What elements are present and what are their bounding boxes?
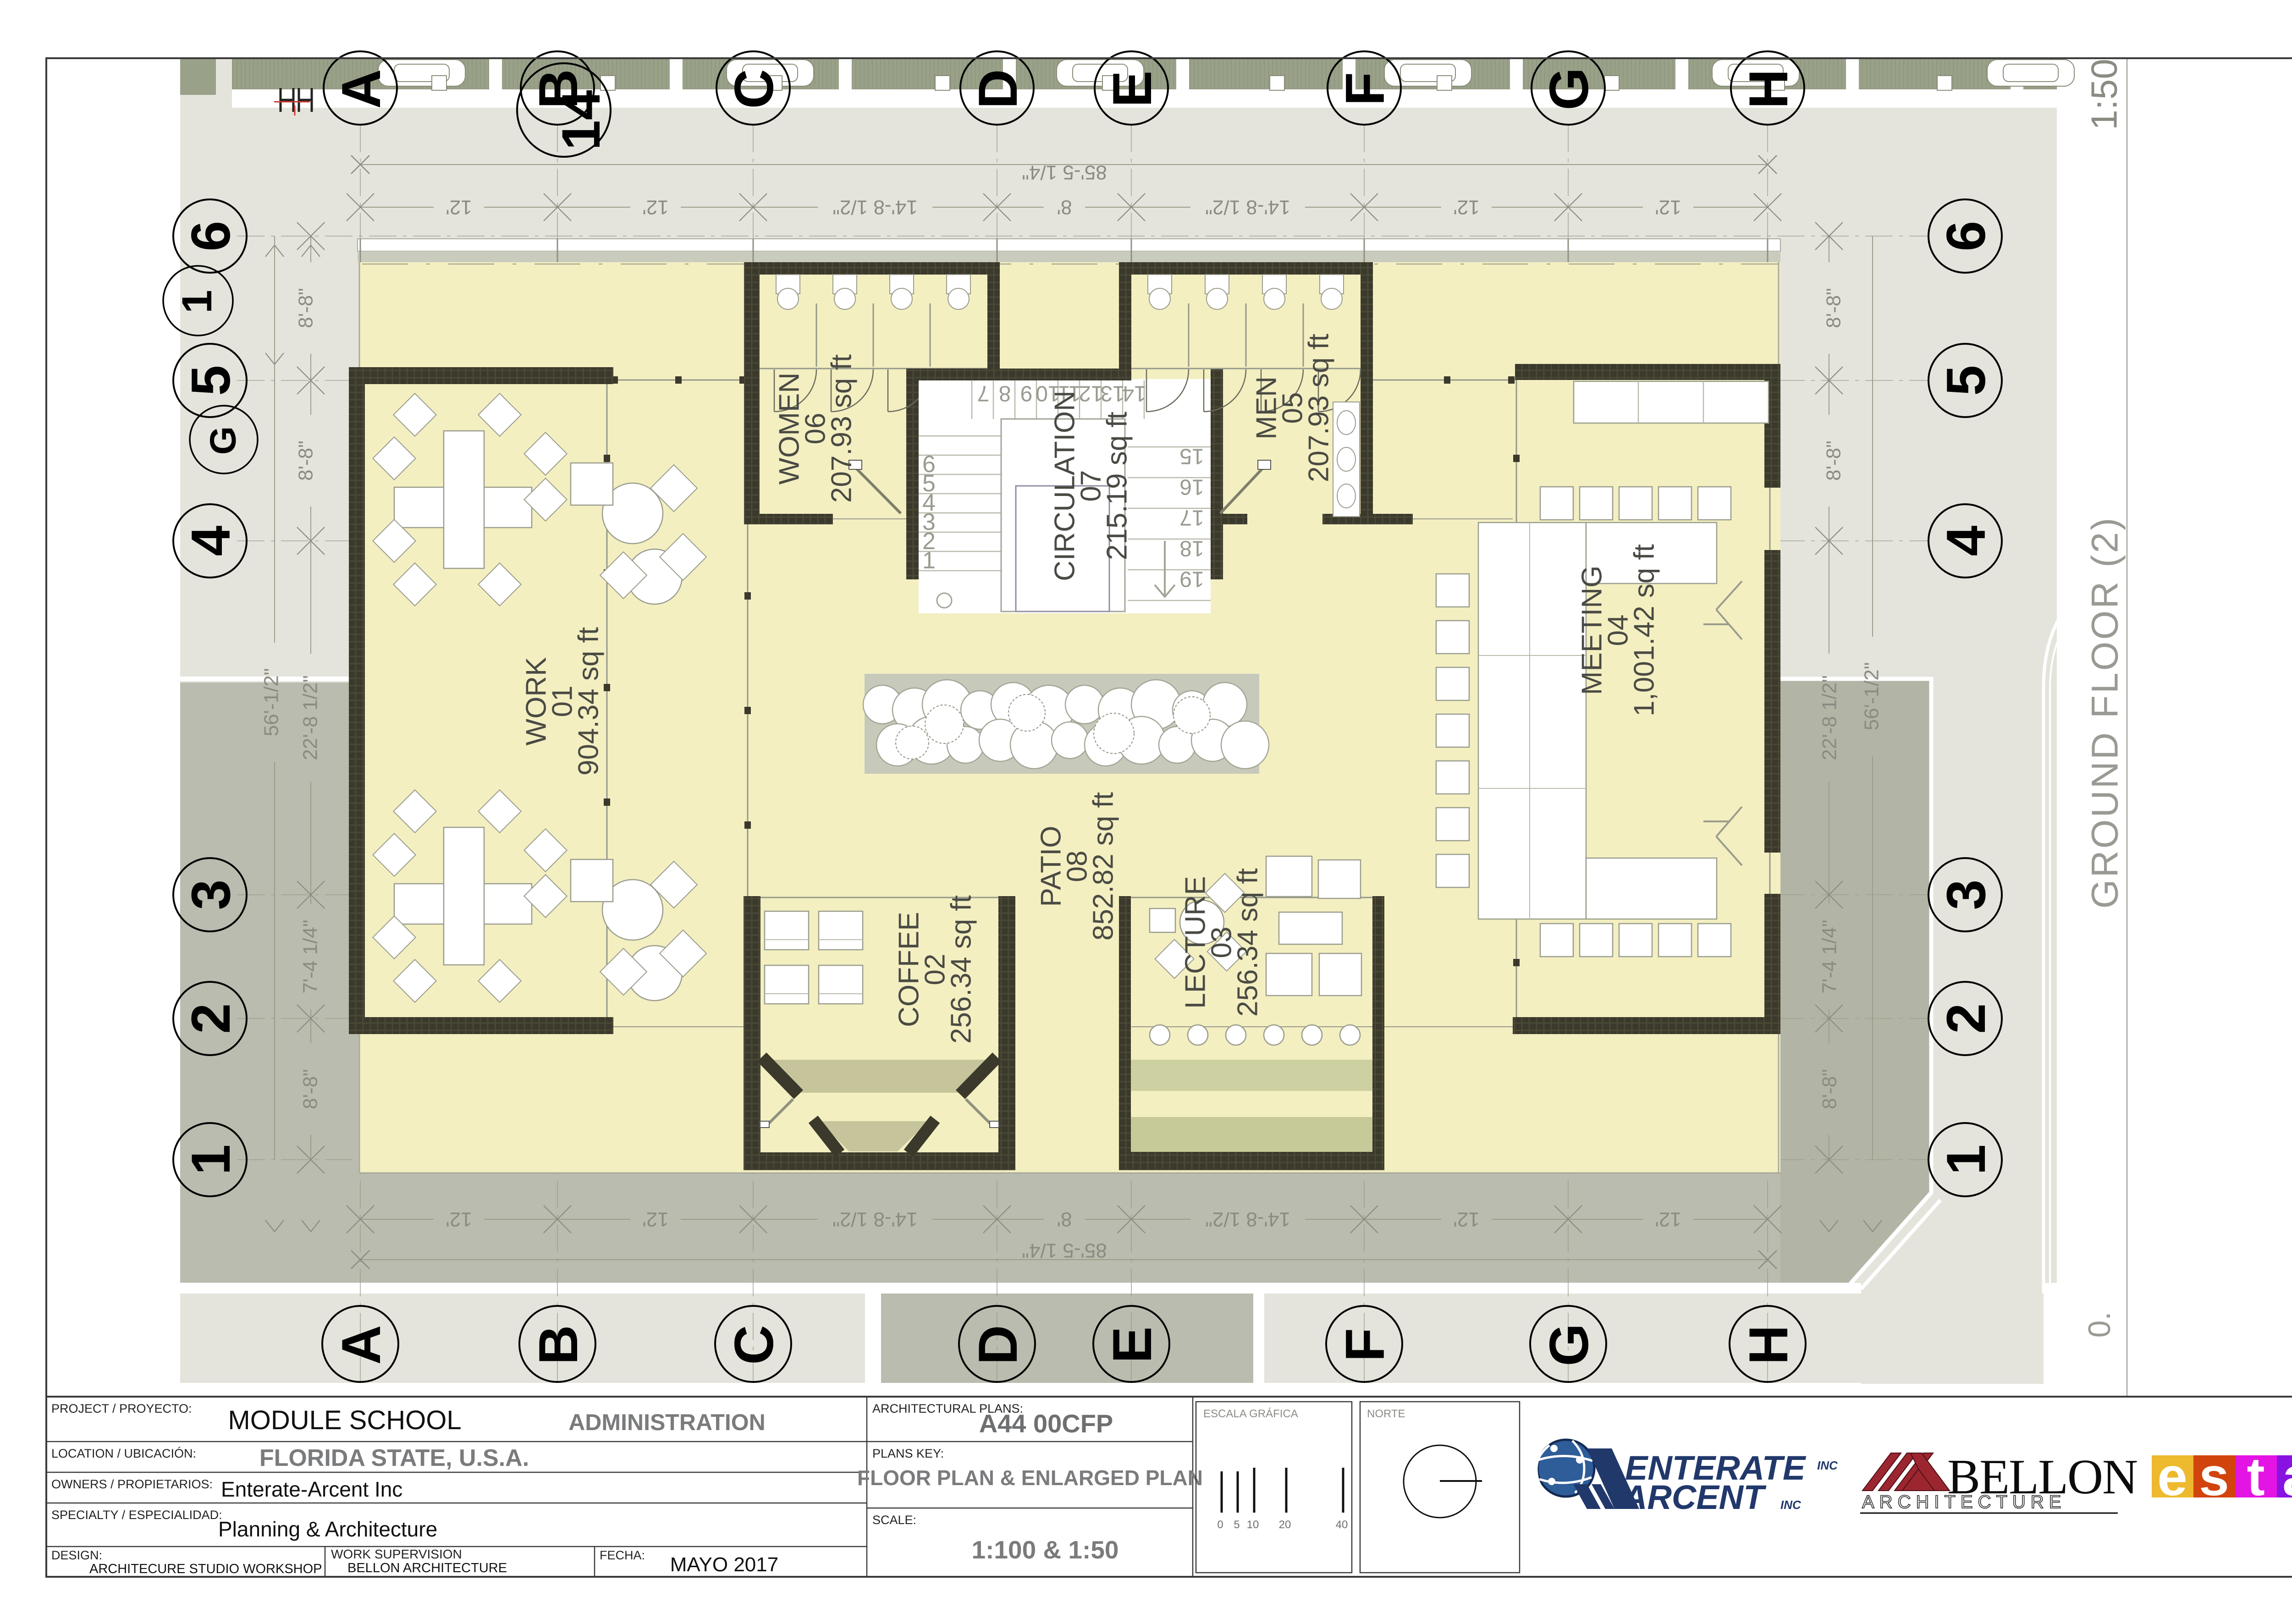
svg-text:5: 5 [1935,365,1997,396]
svg-text:40: 40 [1336,1519,1348,1531]
svg-text:85'-5 1/4": 85'-5 1/4" [1022,161,1107,184]
svg-text:SPECIALTY / ESPECIALIDAD:: SPECIALTY / ESPECIALIDAD: [51,1508,222,1522]
svg-text:3: 3 [180,880,242,910]
svg-text:D: D [967,69,1029,109]
svg-text:E: E [1102,71,1163,107]
svg-text:a: a [2282,1447,2292,1507]
svg-text:12': 12' [446,1208,472,1231]
svg-text:ARCENT: ARCENT [1622,1478,1767,1516]
svg-text:NORTE: NORTE [1367,1408,1405,1420]
svg-text:14'-8 1/2": 14'-8 1/2" [1205,196,1290,219]
svg-text:7: 7 [977,381,990,406]
svg-text:s: s [2199,1447,2229,1507]
svg-text:PLANS KEY:: PLANS KEY: [872,1447,944,1460]
svg-text:17: 17 [1179,506,1204,530]
svg-text:H: H [1738,1325,1799,1365]
svg-text:3: 3 [1935,880,1997,910]
svg-text:PROJECT / PROYECTO:: PROJECT / PROYECTO: [51,1402,192,1415]
svg-text:7'-4 1/4": 7'-4 1/4" [1818,919,1841,993]
svg-text:A44 00CFP: A44 00CFP [979,1409,1113,1438]
svg-text:14'-8 1/2": 14'-8 1/2" [1205,1208,1290,1231]
svg-text:G: G [203,426,243,455]
svg-text:2: 2 [180,1003,242,1034]
svg-text:D: D [967,1325,1029,1365]
svg-text:WORK SUPERVISION: WORK SUPERVISION [331,1547,462,1561]
svg-text:A: A [331,69,392,109]
svg-text:5: 5 [1234,1519,1240,1531]
svg-text:20: 20 [1279,1519,1291,1531]
svg-text:10: 10 [1247,1519,1259,1531]
svg-text:6: 6 [1935,221,1997,252]
svg-text:FLOOR PLAN & ENLARGED PLAN: FLOOR PLAN & ENLARGED PLAN [857,1466,1203,1490]
svg-text:12': 12' [1655,196,1681,219]
svg-text:12': 12' [1655,1208,1681,1231]
svg-text:8: 8 [999,381,1011,406]
svg-text:852.82 sq ft: 852.82 sq ft [1088,792,1119,941]
svg-text:t: t [2247,1447,2264,1507]
svg-text:GROUND FLOOR (2): GROUND FLOOR (2) [2084,516,2126,909]
svg-text:85'-5 1/4": 85'-5 1/4" [1022,1239,1107,1262]
svg-text:ADMINISTRATION: ADMINISTRATION [568,1409,766,1435]
svg-text:ARCHITECTURE: ARCHITECTURE [1862,1492,2066,1512]
svg-text:OWNERS / PROPIETARIOS:: OWNERS / PROPIETARIOS: [51,1477,213,1491]
svg-text:Planning & Architecture: Planning & Architecture [218,1517,437,1541]
svg-text:BELLON ARCHITECTURE: BELLON ARCHITECTURE [347,1561,507,1575]
svg-text:207.93 sq ft: 207.93 sq ft [1303,334,1335,482]
svg-text:8'-8": 8'-8" [299,1069,322,1109]
svg-text:15: 15 [1179,444,1204,468]
svg-text:1: 1 [1935,1145,1997,1175]
svg-text:56'-1/2": 56'-1/2" [1861,662,1883,731]
svg-text:56'-1/2": 56'-1/2" [260,668,283,737]
svg-text:ARCHITECURE STUDIO WORKSHOP: ARCHITECURE STUDIO WORKSHOP [89,1562,322,1576]
svg-text:1,001.42 sq ft: 1,001.42 sq ft [1629,544,1660,716]
svg-text:FLORIDA STATE, U.S.A.: FLORIDA STATE, U.S.A. [259,1445,529,1471]
svg-text:8'-8": 8'-8" [1823,288,1845,328]
svg-text:SCALE:: SCALE: [872,1513,916,1527]
svg-text:5: 5 [180,365,242,396]
svg-text:12': 12' [642,1208,668,1231]
svg-text:9: 9 [1020,381,1033,406]
svg-text:6: 6 [922,451,936,478]
svg-text:A: A [331,1325,392,1365]
svg-text:12: 12 [1079,381,1103,406]
svg-text:e: e [2157,1447,2187,1507]
svg-text:FECHA:: FECHA: [600,1548,645,1562]
svg-text:0.: 0. [2082,1312,2117,1338]
svg-text:8'-8": 8'-8" [1823,440,1845,481]
svg-text:Enterate-Arcent Inc: Enterate-Arcent Inc [221,1477,402,1501]
svg-text:E: E [1102,1327,1163,1363]
svg-text:12': 12' [446,196,472,219]
svg-text:INC: INC [1780,1498,1802,1512]
svg-text:MODULE SCHOOL: MODULE SCHOOL [228,1405,461,1435]
svg-text:8'-8": 8'-8" [1818,1069,1841,1109]
svg-text:DESIGN:: DESIGN: [51,1548,102,1562]
svg-text:256.34 sq ft: 256.34 sq ft [1232,868,1264,1017]
svg-text:1: 1 [174,290,220,313]
svg-text:4: 4 [180,525,242,556]
svg-text:207.93 sq ft: 207.93 sq ft [826,354,858,503]
svg-text:1: 1 [180,1145,242,1175]
svg-text:904.34 sq ft: 904.34 sq ft [573,627,605,776]
svg-text:18: 18 [1179,536,1204,561]
svg-text:16: 16 [1179,475,1204,499]
svg-text:8'-8": 8'-8" [295,288,317,328]
svg-text:1:100 & 1:50: 1:100 & 1:50 [971,1536,1118,1564]
svg-text:19: 19 [1179,567,1204,591]
svg-text:C: C [723,69,785,109]
svg-text:F: F [1334,1328,1396,1361]
svg-text:C: C [723,1325,785,1365]
svg-text:12': 12' [642,196,668,219]
svg-text:12': 12' [1453,196,1479,219]
svg-text:MAYO 2017: MAYO 2017 [670,1553,778,1576]
svg-text:12': 12' [1453,1208,1479,1231]
svg-text:4: 4 [1935,525,1997,556]
svg-text:G: G [1538,67,1600,110]
svg-text:256.34 sq ft: 256.34 sq ft [946,895,977,1044]
svg-text:8': 8' [1057,196,1072,219]
svg-text:8'-8": 8'-8" [295,440,317,481]
svg-text:22'-8 1/2": 22'-8 1/2" [299,675,322,760]
svg-text:0: 0 [1217,1519,1223,1531]
svg-text:7'-4 1/4": 7'-4 1/4" [299,919,322,993]
svg-text:215.19 sq ft: 215.19 sq ft [1102,412,1133,560]
svg-text:LOCATION / UBICACIÓN:: LOCATION / UBICACIÓN: [51,1446,196,1460]
svg-text:22'-8 1/2": 22'-8 1/2" [1818,675,1841,760]
svg-text:H: H [1738,69,1799,109]
svg-text:13: 13 [1100,381,1124,406]
svg-text:INC: INC [1817,1459,1838,1472]
svg-text:14: 14 [1122,381,1146,406]
svg-text:F: F [1334,72,1396,105]
svg-text:G: G [1538,1323,1600,1366]
svg-text:B: B [528,69,589,109]
svg-text:B: B [528,1325,589,1365]
svg-text:1:50: 1:50 [2084,59,2125,130]
svg-text:2: 2 [1935,1003,1997,1034]
svg-text:8': 8' [1057,1208,1072,1231]
svg-text:6: 6 [180,221,242,252]
svg-text:ESCALA GRÁFICA: ESCALA GRÁFICA [1203,1408,1298,1420]
svg-text:14'-8 1/2": 14'-8 1/2" [832,1208,917,1231]
svg-text:14'-8 1/2": 14'-8 1/2" [832,196,917,219]
